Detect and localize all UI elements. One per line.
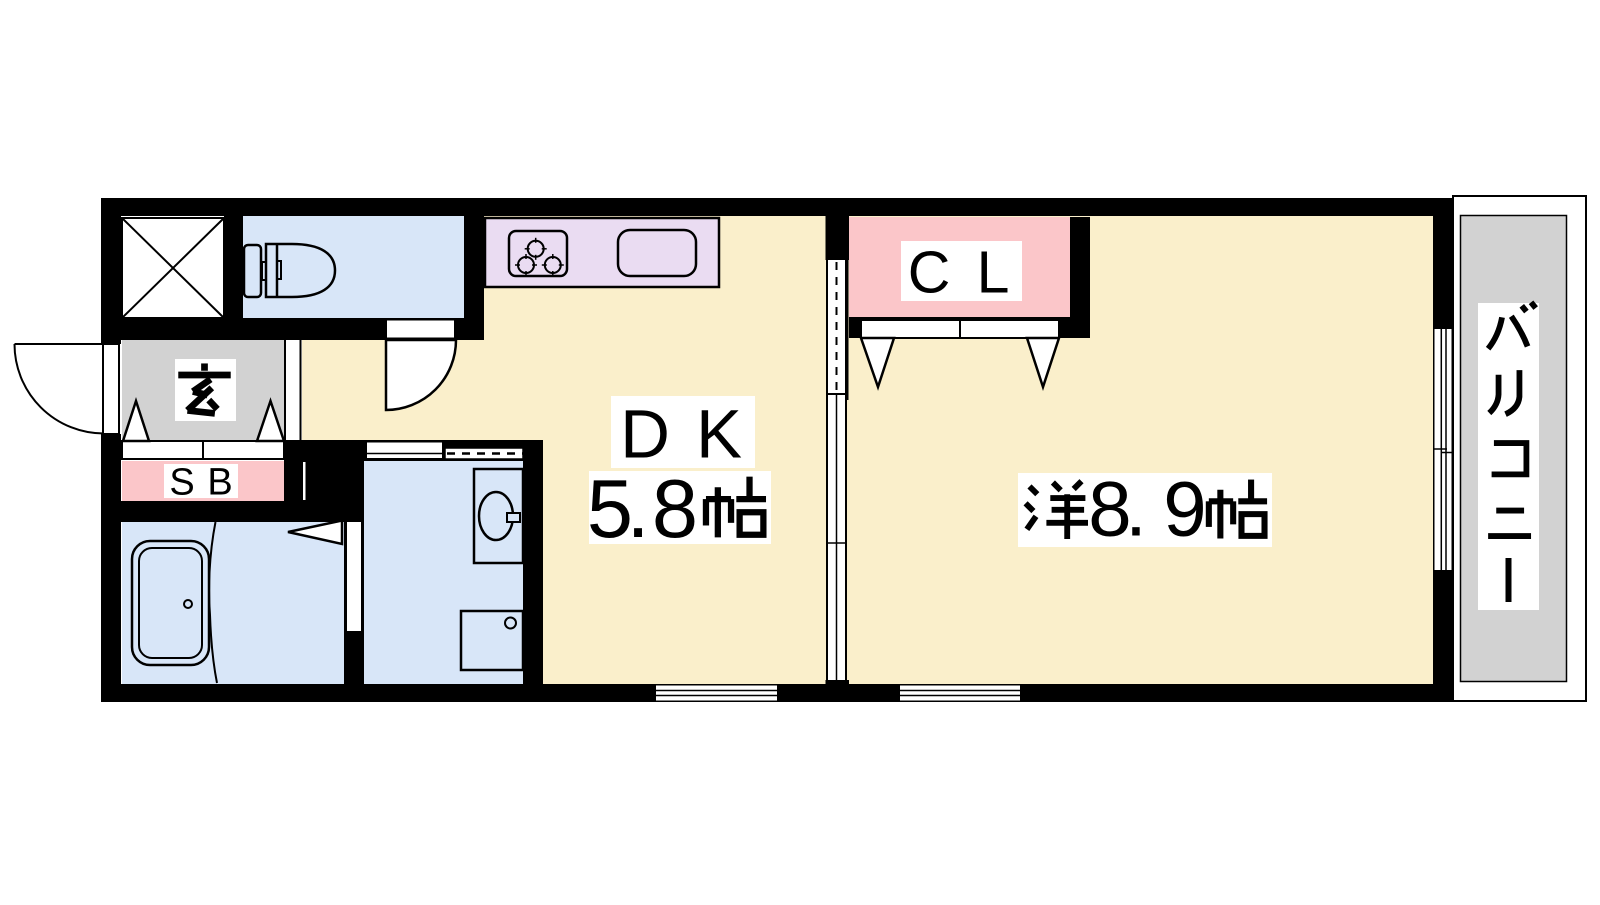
svg-text:.: . [626, 462, 649, 555]
svg-text:9: 9 [1163, 465, 1206, 553]
svg-text:8: 8 [652, 462, 698, 555]
svg-text:.: . [1125, 465, 1147, 553]
svg-text:S: S [169, 462, 194, 504]
svg-text:L: L [977, 240, 1010, 306]
svg-text:C: C [908, 240, 951, 306]
svg-text:B: B [207, 462, 232, 504]
svg-text:D: D [620, 396, 670, 473]
svg-text:K: K [696, 396, 742, 473]
